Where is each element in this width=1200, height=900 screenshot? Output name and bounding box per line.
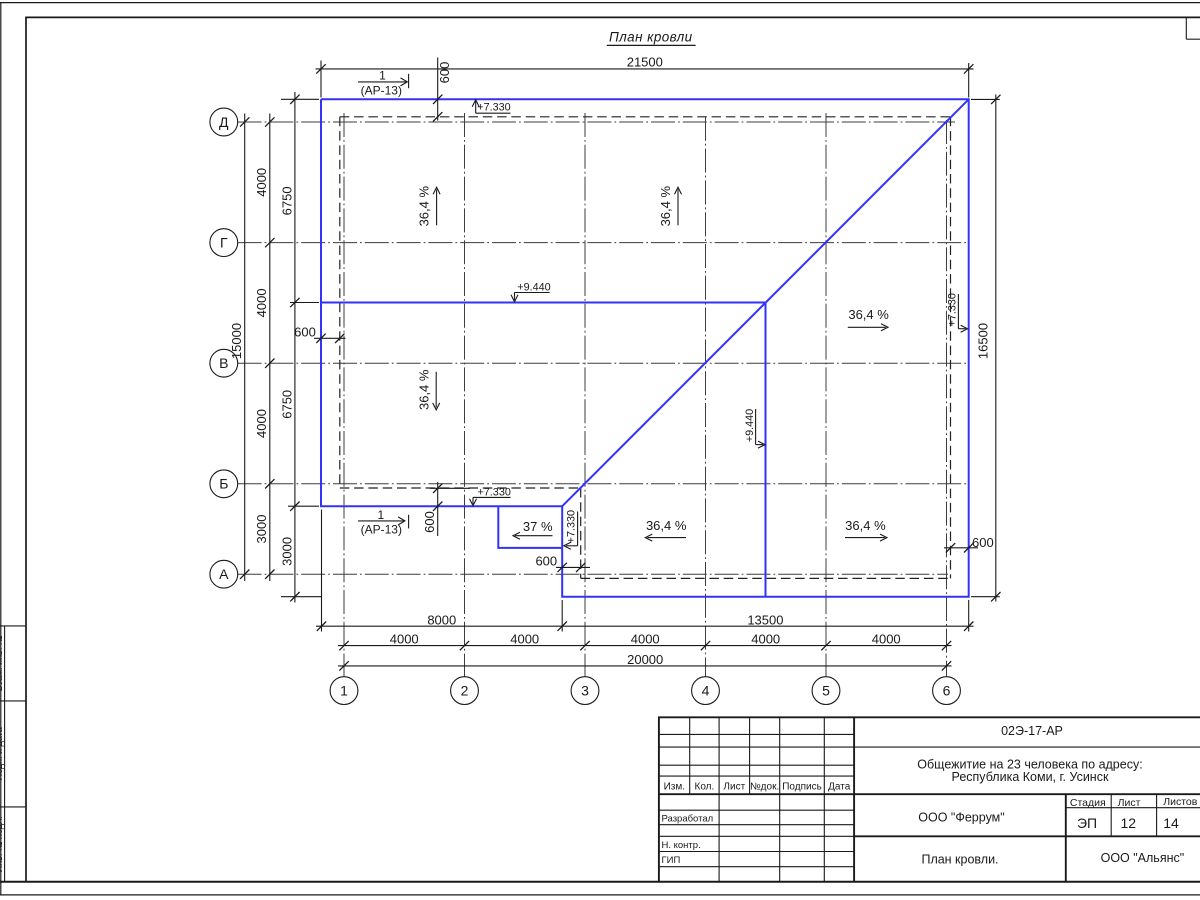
svg-text:Г: Г [220, 234, 228, 250]
svg-text:36,4 %: 36,4 % [416, 369, 431, 410]
svg-text:36,4 %: 36,4 % [416, 186, 431, 227]
svg-text:13500: 13500 [747, 612, 783, 627]
svg-text:4000: 4000 [631, 632, 660, 647]
svg-text:12: 12 [1121, 815, 1137, 831]
svg-text:4000: 4000 [254, 409, 269, 438]
svg-text:600: 600 [422, 511, 437, 533]
svg-text:Лист: Лист [723, 782, 745, 793]
svg-text:600: 600 [437, 62, 452, 84]
svg-text:Стадия: Стадия [1070, 797, 1106, 809]
svg-text:№док.: №док. [750, 782, 779, 793]
svg-text:(АР-13): (АР-13) [361, 84, 402, 98]
svg-text:16500: 16500 [975, 323, 990, 359]
svg-text:ООО "Феррум": ООО "Феррум" [918, 811, 1004, 825]
svg-text:Кол.: Кол. [695, 782, 715, 793]
svg-text:6750: 6750 [279, 390, 294, 419]
svg-text:Изм.: Изм. [664, 782, 685, 793]
svg-text:Б: Б [219, 476, 228, 492]
svg-text:Разработал: Разработал [662, 814, 714, 825]
svg-text:1: 1 [379, 69, 386, 83]
svg-text:6: 6 [943, 682, 951, 698]
svg-text:600: 600 [535, 554, 557, 569]
svg-text:20000: 20000 [627, 652, 663, 667]
svg-text:Подпись: Подпись [782, 782, 822, 793]
svg-text:Инв. № подл.: Инв. № подл. [0, 816, 4, 872]
svg-text:5: 5 [822, 682, 830, 698]
svg-text:4: 4 [702, 682, 710, 698]
svg-text:1: 1 [340, 682, 348, 698]
svg-text:Лист: Лист [1118, 797, 1141, 809]
svg-text:В: В [219, 355, 228, 371]
svg-text:3000: 3000 [279, 537, 294, 566]
svg-text:План кровли.: План кровли. [921, 852, 998, 866]
svg-text:36,4 %: 36,4 % [646, 518, 687, 533]
svg-text:4000: 4000 [254, 288, 269, 317]
svg-text:8000: 8000 [427, 612, 456, 627]
svg-text:6750: 6750 [279, 186, 294, 215]
svg-text:ЭП: ЭП [1077, 815, 1097, 831]
svg-text:+7.330: +7.330 [477, 101, 510, 113]
svg-text:1: 1 [377, 508, 384, 522]
svg-text:Республика Коми, г. Усинск: Республика Коми, г. Усинск [952, 770, 1109, 784]
svg-text:Дата: Дата [828, 782, 851, 793]
svg-text:+9.440: +9.440 [517, 281, 550, 293]
svg-text:Д: Д [219, 114, 229, 130]
svg-text:600: 600 [294, 325, 316, 340]
svg-text:+7.330: +7.330 [947, 293, 959, 326]
svg-text:15000: 15000 [229, 323, 244, 359]
svg-text:+9.440: +9.440 [744, 409, 756, 442]
svg-text:14: 14 [1163, 815, 1179, 831]
svg-text:Подп. и дата: Подп. и дата [0, 727, 4, 780]
svg-text:Взам. инв. №: Взам. инв. № [0, 635, 4, 691]
svg-text:(АР-13): (АР-13) [361, 522, 402, 536]
svg-text:4000: 4000 [254, 168, 269, 197]
svg-text:2: 2 [461, 682, 469, 698]
svg-text:ООО "Альянс": ООО "Альянс" [1101, 851, 1185, 865]
svg-text:36,4 %: 36,4 % [658, 186, 673, 227]
svg-text:600: 600 [972, 535, 994, 550]
svg-text:36,4 %: 36,4 % [845, 518, 886, 533]
svg-text:36,4 %: 36,4 % [848, 307, 889, 322]
svg-text:4000: 4000 [390, 632, 419, 647]
svg-text:4000: 4000 [510, 632, 539, 647]
svg-text:37 %: 37 % [523, 519, 553, 534]
svg-text:А: А [219, 566, 229, 582]
svg-text:21500: 21500 [627, 54, 663, 69]
svg-text:+7.330: +7.330 [565, 510, 577, 543]
svg-text:4000: 4000 [872, 632, 901, 647]
svg-text:3: 3 [581, 682, 589, 698]
svg-text:+7.330: +7.330 [478, 486, 511, 498]
svg-text:План кровли: План кровли [609, 30, 693, 45]
svg-text:3000: 3000 [254, 515, 269, 544]
svg-text:Н. контр.: Н. контр. [662, 840, 701, 851]
svg-text:ГИП: ГИП [662, 855, 681, 866]
svg-text:02Э-17-АР: 02Э-17-АР [1001, 724, 1063, 738]
svg-text:4000: 4000 [751, 632, 780, 647]
svg-text:Листов: Листов [1163, 796, 1198, 808]
